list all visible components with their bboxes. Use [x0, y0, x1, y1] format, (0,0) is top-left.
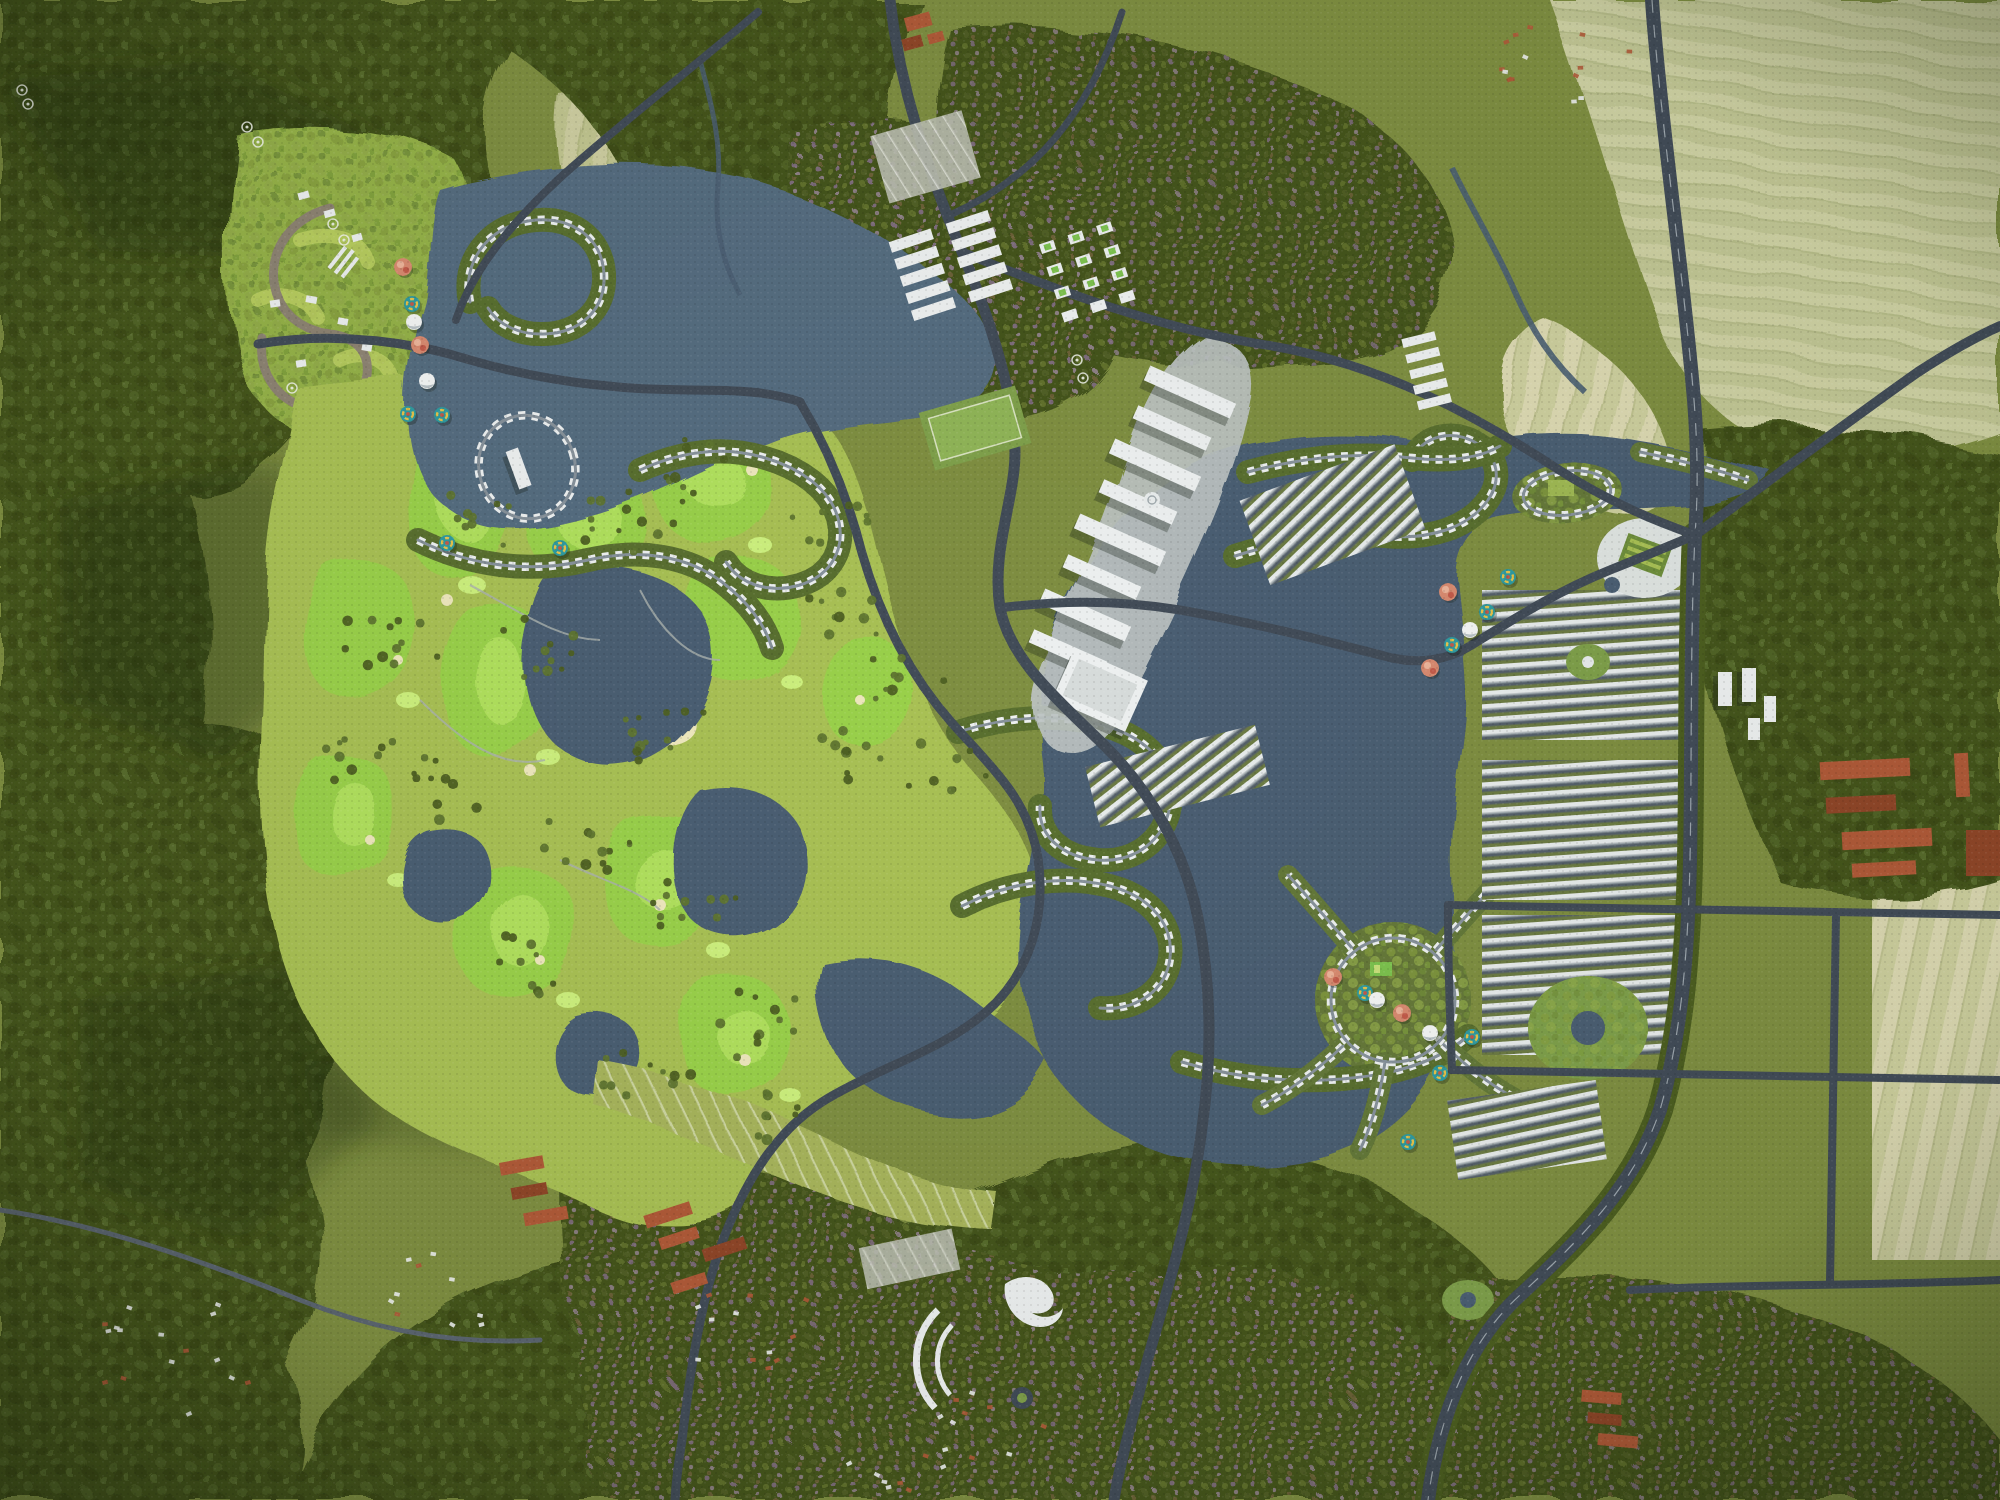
masterplan-aerial-view	[0, 0, 2000, 1500]
masterplan-map-canvas	[0, 0, 2000, 1500]
vignette-overlay	[0, 0, 2000, 1500]
